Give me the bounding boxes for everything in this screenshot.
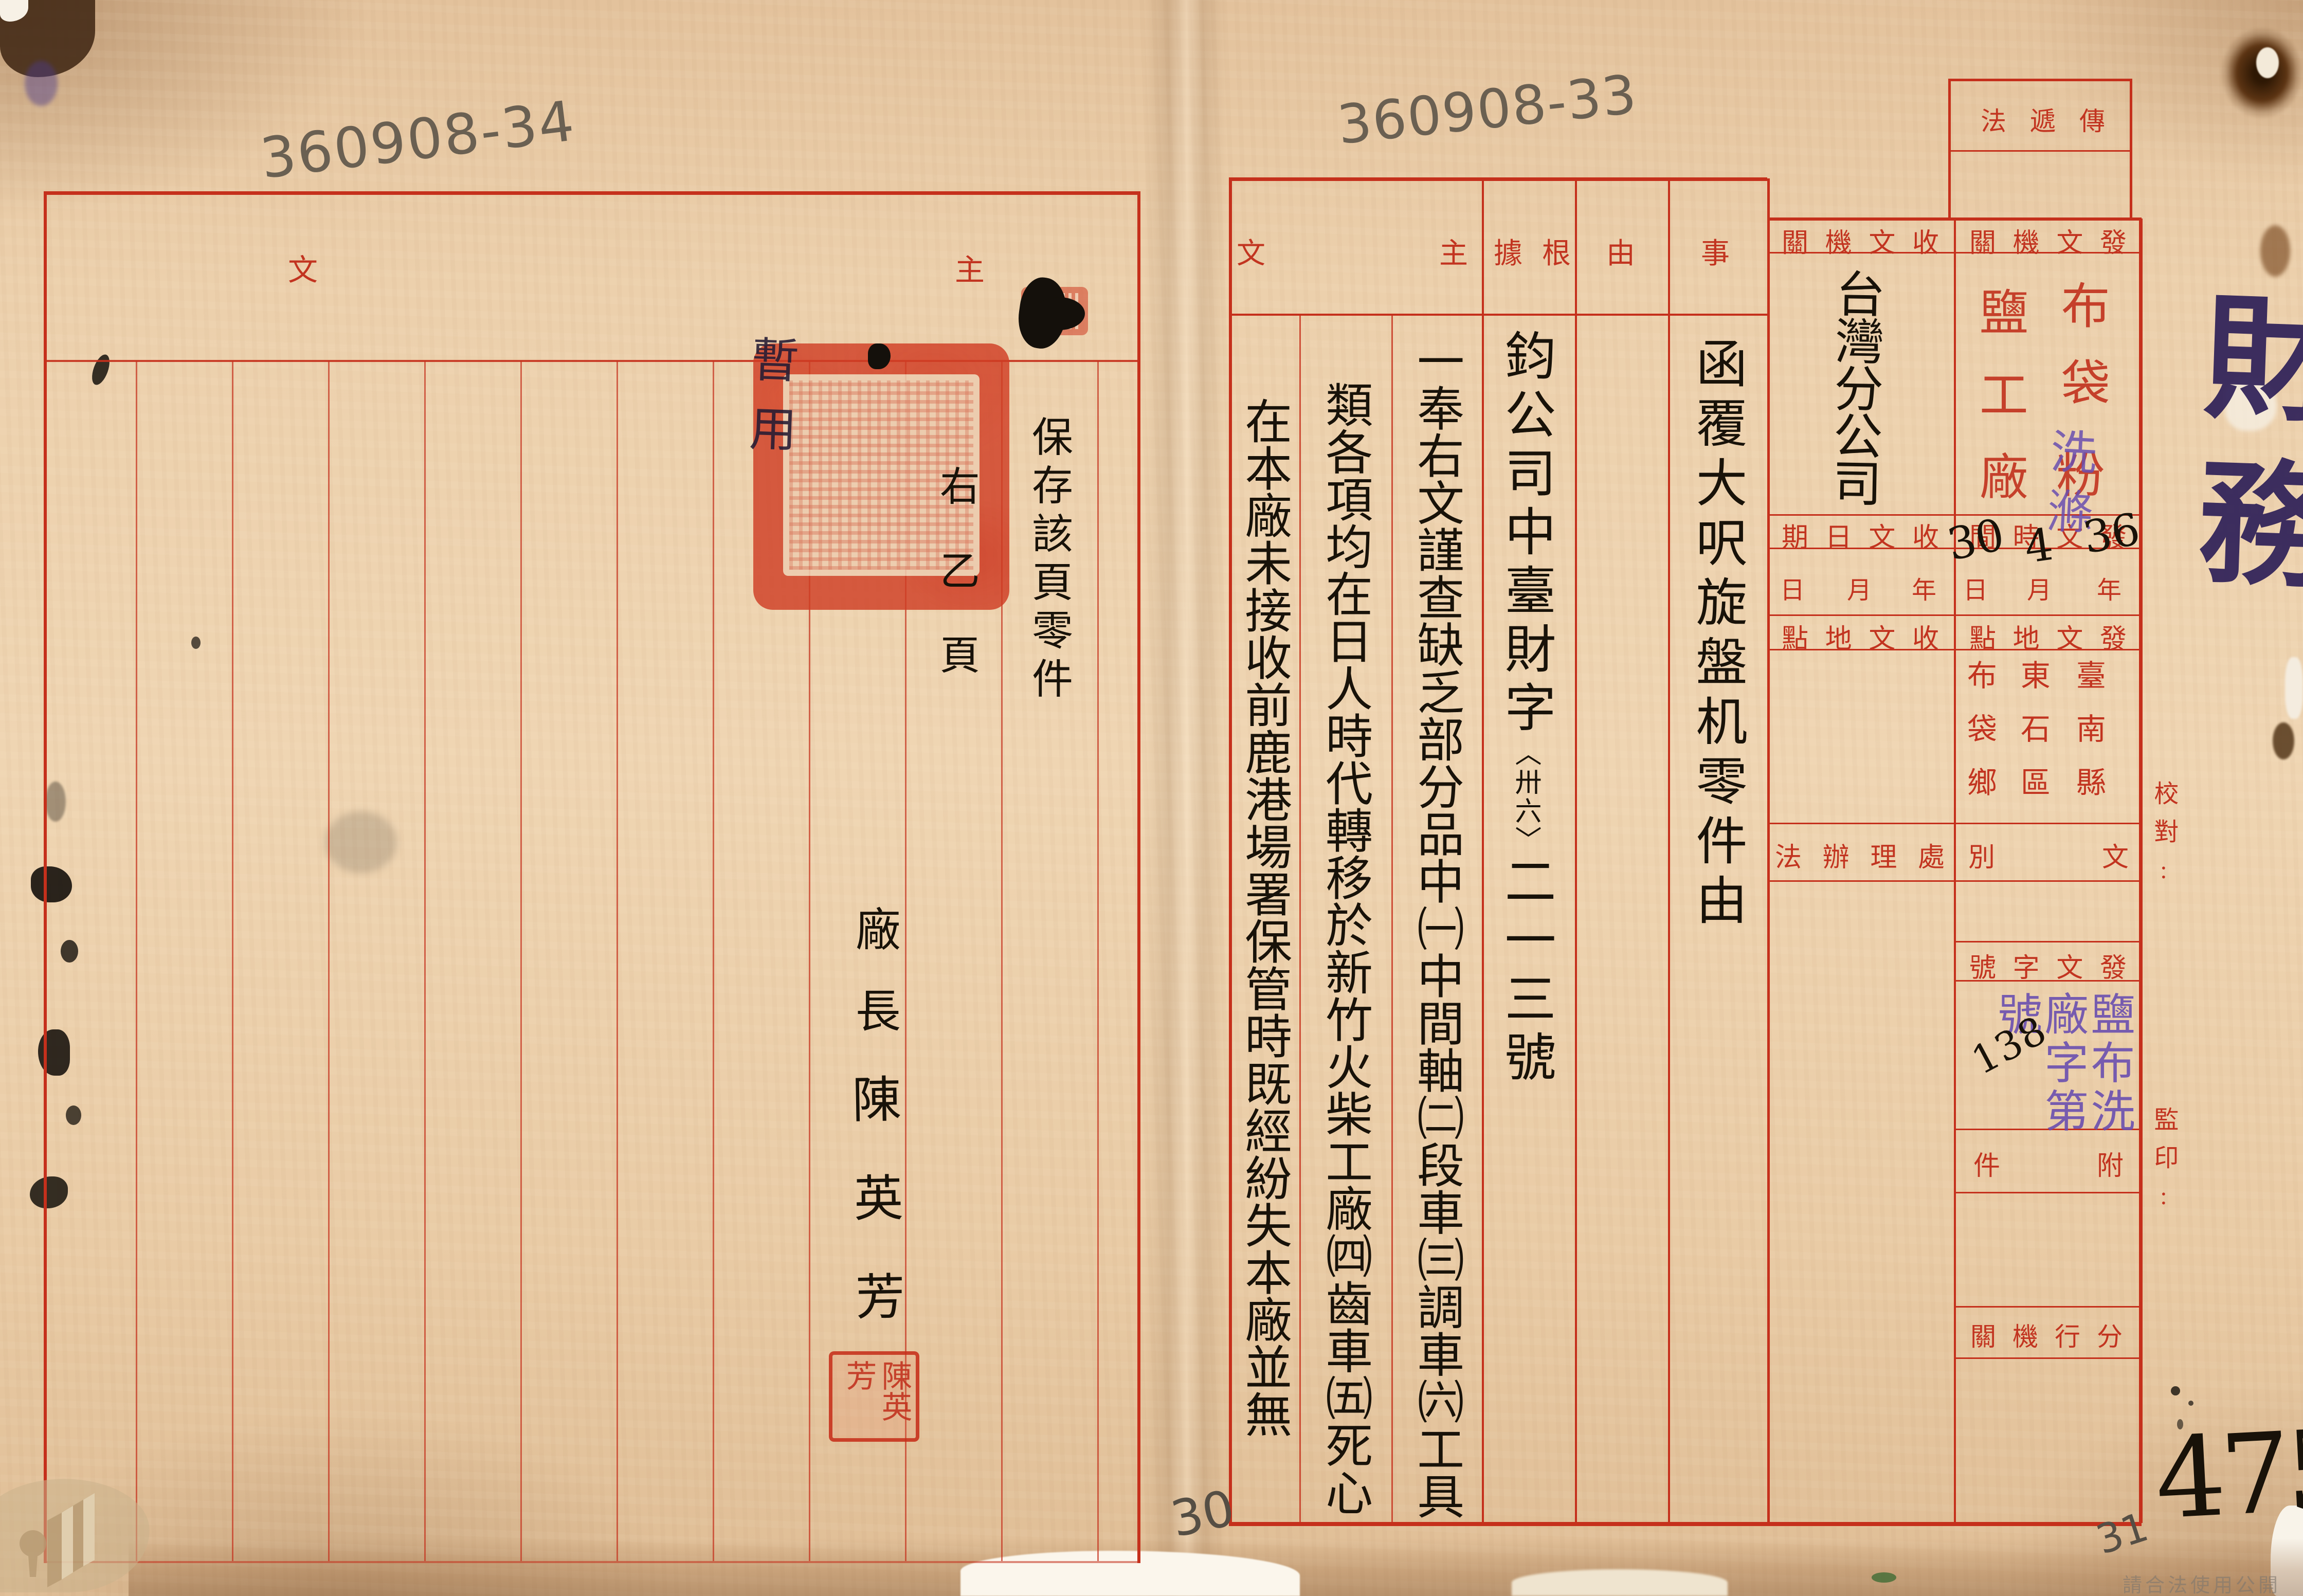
main-text-column-3: 在本廠未接收前鹿港場署保管時既經紛失本廠並無 — [1239, 397, 1289, 1438]
grey-smudge — [325, 811, 397, 873]
grid-line — [1668, 178, 1670, 1523]
purple-smudge — [25, 61, 58, 106]
grid-line — [232, 361, 233, 1561]
header-subject-char2: 由 — [1606, 230, 1635, 272]
delivery-method-label: 傳遞法 — [1981, 101, 2105, 138]
grid-line — [136, 361, 137, 1561]
send-year-label: 年 — [2097, 570, 2121, 606]
green-speck — [1872, 1572, 1896, 1583]
grid-line — [1097, 361, 1099, 1561]
grid-line — [1948, 79, 1951, 219]
grid-line — [1229, 1522, 2142, 1526]
grid-line — [2139, 219, 2143, 1523]
grid-line — [1954, 219, 1956, 1523]
basis-note: 〈卅六〉 — [1510, 739, 1541, 855]
main-text-column-2: 類各項均在日人時代轉移於新竹火柴工廠㈣齒車㈤死心 — [1320, 380, 1370, 1516]
send-place-col2: 東石區 — [2017, 660, 2048, 820]
seal-supervision-label: 監印: — [2150, 1107, 2176, 1223]
ink-speck — [61, 940, 78, 963]
grid-line — [44, 1561, 1140, 1563]
category-note: 財務 — [2181, 285, 2303, 621]
archive-logo-watermark — [0, 1472, 154, 1596]
edge-annotation: 暫用 — [742, 334, 796, 474]
basis-column: 鈞公司中臺財字〈卅六〉二一三號 — [1499, 329, 1553, 1460]
signer-title: 廠長 — [850, 906, 898, 1068]
send-org-label: 發文機關 — [1969, 221, 2127, 260]
ink-speck — [2188, 1401, 2193, 1406]
basis-head: 鈞公司中臺財字 — [1496, 329, 1556, 739]
grid-line — [520, 361, 522, 1561]
grid-line — [616, 361, 618, 1561]
grid-line — [1948, 79, 2132, 81]
basis-tail: 二一三號 — [1496, 855, 1556, 1089]
grid-line — [1391, 315, 1393, 1523]
doc-type-label: 文別 — [1968, 836, 2129, 874]
grid-line — [1575, 178, 1577, 1523]
scanned-archival-document: 主文 360908-34 保存該頁零件 右乙頁 暫用 廠長 陳英芳 陳英芳 — [0, 0, 2303, 1596]
send-place-col3: 布袋鄉 — [1963, 660, 1994, 820]
left-page-header: 主文 — [288, 246, 985, 289]
recv-year-label: 年 — [1912, 570, 1936, 606]
grid-line — [1229, 177, 1232, 1525]
grid-line — [1229, 314, 1767, 316]
edge-stain — [2273, 722, 2294, 759]
edge-stain — [2260, 225, 2290, 277]
handling-label: 處理辦法 — [1775, 836, 1945, 874]
grid-line — [328, 361, 330, 1561]
grid-line — [1767, 178, 1770, 1523]
recv-place-label: 收文地點 — [1782, 617, 1939, 656]
page-note: 右乙頁 — [935, 465, 977, 718]
center-fold-crease — [1144, 0, 1226, 1596]
subject-column: 函覆大呎旋盤机零件由 — [1690, 337, 1744, 933]
grid-line — [44, 191, 47, 1563]
send-day-label: 日 — [1963, 570, 1988, 606]
header-basis: 根據 — [1494, 230, 1571, 272]
send-date-year: 36 — [2079, 503, 2144, 564]
recv-month-label: 月 — [1847, 570, 1872, 606]
grid-line — [1954, 941, 2142, 942]
grid-line — [1954, 1357, 2142, 1359]
usage-watermark: 請合法使用公開之影像 — [2123, 1569, 2303, 1596]
grid-line — [424, 361, 426, 1561]
grid-line — [1954, 1306, 2142, 1308]
grid-line — [713, 361, 714, 1561]
recv-day-label: 日 — [1780, 570, 1805, 606]
ink-speck — [2171, 1386, 2180, 1395]
ink-speck — [191, 637, 201, 649]
recv-org-value: 台灣分公司 — [1826, 268, 1882, 505]
header-subject-char1: 事 — [1701, 230, 1730, 272]
attachment-label: 附件 — [1973, 1144, 2124, 1183]
signer-name: 陳英芳 — [846, 1073, 903, 1370]
doc-number-label: 發文字號 — [1969, 946, 2127, 985]
recv-date-label: 收文日期 — [1782, 516, 1939, 554]
bottom-tear — [1512, 1569, 1728, 1596]
name-seal-text: 陳英芳 — [841, 1360, 912, 1432]
worn-patch — [2285, 657, 2303, 719]
grid-line — [1948, 150, 2132, 152]
ink-speck — [66, 1105, 81, 1125]
send-place-col1: 臺南縣 — [2072, 660, 2103, 820]
send-month-label: 月 — [2027, 570, 2052, 606]
send-org-stamp-col2: 鹽工廠 — [1973, 287, 2025, 534]
grid-line — [1482, 178, 1484, 1523]
grid-line — [1954, 1192, 2142, 1193]
grid-line — [1137, 191, 1140, 1563]
ink-speck — [38, 1029, 70, 1076]
grid-line — [1229, 177, 1767, 181]
proofread-label: 校對: — [2150, 781, 2176, 897]
ink-blob — [1033, 297, 1085, 330]
send-org-stamp-col1: 布袋 — [2055, 280, 2107, 434]
folio-number: 475 — [2152, 1405, 2303, 1544]
grid-line — [2130, 79, 2132, 219]
blot-hole — [2256, 47, 2279, 78]
preserve-note: 保存該頁零件 — [1027, 415, 1071, 705]
send-place-label: 發文地點 — [1969, 617, 2127, 656]
header-main-text: 主文 — [1237, 230, 1468, 272]
name-seal: 陳英芳 — [829, 1351, 919, 1442]
recv-org-label: 收文機關 — [1782, 221, 1939, 260]
ink-speck — [45, 782, 66, 822]
branch-label: 分行機關 — [1970, 1316, 2123, 1353]
main-text-column-1: 一奉右文謹查缺乏部分品中㈠中間軸㈡段車㈢調車㈥工具 — [1411, 337, 1461, 1519]
grid-line — [44, 191, 1140, 195]
grid-line — [1299, 315, 1301, 1523]
